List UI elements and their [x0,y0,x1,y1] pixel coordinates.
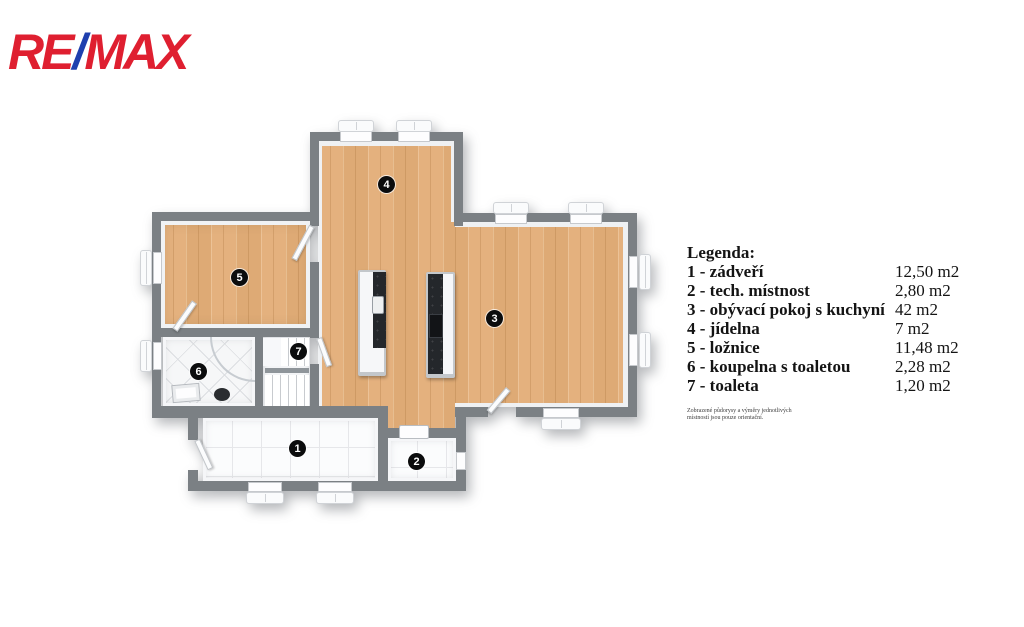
window-sill [568,202,604,214]
wall [152,212,161,418]
window-sill [639,254,651,290]
window [340,131,372,142]
stair-landing [263,338,281,366]
floorplan: 1 2 3 4 5 6 7 [150,126,655,506]
window [153,342,162,370]
legend-area: 2,80 m2 [895,281,951,300]
window-sill [140,340,152,372]
legend-label: 7 - toaleta [687,376,895,395]
wall [188,412,198,440]
bathroom-sink [171,383,200,403]
toilet [214,388,230,401]
window-sill [493,202,529,214]
window-sill [246,492,284,504]
window-sill [338,120,374,132]
wall [310,262,319,338]
legend-area: 42 m2 [895,300,938,319]
legend-row-5: 5 - ložnice 11,48 m2 [687,338,977,357]
wall [188,470,198,491]
wall [152,406,385,418]
wall-ledge [318,141,455,146]
legend-disclaimer: Zobrazené půdorysy a výměry jednotlivých… [687,408,977,422]
wall [454,132,463,226]
legend-row-1: 1 - zádveří 12,50 m2 [687,262,977,281]
room-badge-5: 5 [231,269,248,286]
legend: Legenda: 1 - zádveří 12,50 m2 2 - tech. … [687,243,977,422]
wall [255,331,263,418]
window [248,482,282,492]
window [495,214,527,224]
legend-label: 1 - zádveří [687,262,895,281]
legend-row-2: 2 - tech. místnost 2,80 m2 [687,281,977,300]
wall [152,212,319,221]
kitchen-sink [372,296,384,314]
wall-ledge [455,222,628,227]
legend-label: 6 - koupelna s toaletou [687,357,895,376]
window-sill [396,120,432,132]
legend-title: Legenda: [687,243,977,262]
disclaimer-line-2: místností jsou pouze orientační. [687,415,977,422]
window-sill [639,332,651,368]
room-badge-2: 2 [408,453,425,470]
legend-label: 2 - tech. místnost [687,281,895,300]
wall [454,213,637,222]
logo-re: RE [8,24,71,80]
wall [455,407,488,417]
room-badge-7: 7 [290,343,307,360]
window [318,482,352,492]
window [456,452,466,470]
window [629,334,638,366]
door [399,425,429,439]
room-badge-6: 6 [190,363,207,380]
legend-row-3: 3 - obývací pokoj s kuchyní 42 m2 [687,300,977,319]
kitchen-cabinet [443,274,453,374]
legend-area: 7 m2 [895,319,929,338]
window [629,256,638,288]
wall [456,470,466,491]
legend-row-4: 4 - jídelna 7 m2 [687,319,977,338]
legend-label: 5 - ložnice [687,338,895,357]
legend-area: 1,20 m2 [895,376,951,395]
wall [628,213,637,417]
room-badge-3: 3 [486,310,503,327]
window [570,214,602,224]
window-sill [316,492,354,504]
wall [310,132,462,141]
legend-area: 11,48 m2 [895,338,959,357]
disclaimer-line-1: Zobrazené půdorysy a výměry jednotlivých [687,408,977,415]
kitchen-stove [429,314,443,338]
window [398,131,430,142]
legend-label: 4 - jídelna [687,319,895,338]
legend-area: 2,28 m2 [895,357,951,376]
kitchen-cabinet [360,348,384,372]
legend-row-6: 6 - koupelna s toaletou 2,28 m2 [687,357,977,376]
room-badge-1: 1 [289,440,306,457]
legend-row-7: 7 - toaleta 1,20 m2 [687,376,977,395]
window-sill [140,250,152,286]
wall [378,406,388,491]
logo-slash-icon: / [71,24,84,80]
window [153,252,162,284]
legend-label: 3 - obývací pokoj s kuchyní [687,300,895,319]
window [543,408,579,418]
stair-divider [265,368,309,373]
legend-area: 12,50 m2 [895,262,959,281]
room-badge-4: 4 [378,176,395,193]
logo-max: MAX [84,24,186,80]
remax-logo: RE/MAX [8,26,186,78]
window-sill [541,418,581,430]
